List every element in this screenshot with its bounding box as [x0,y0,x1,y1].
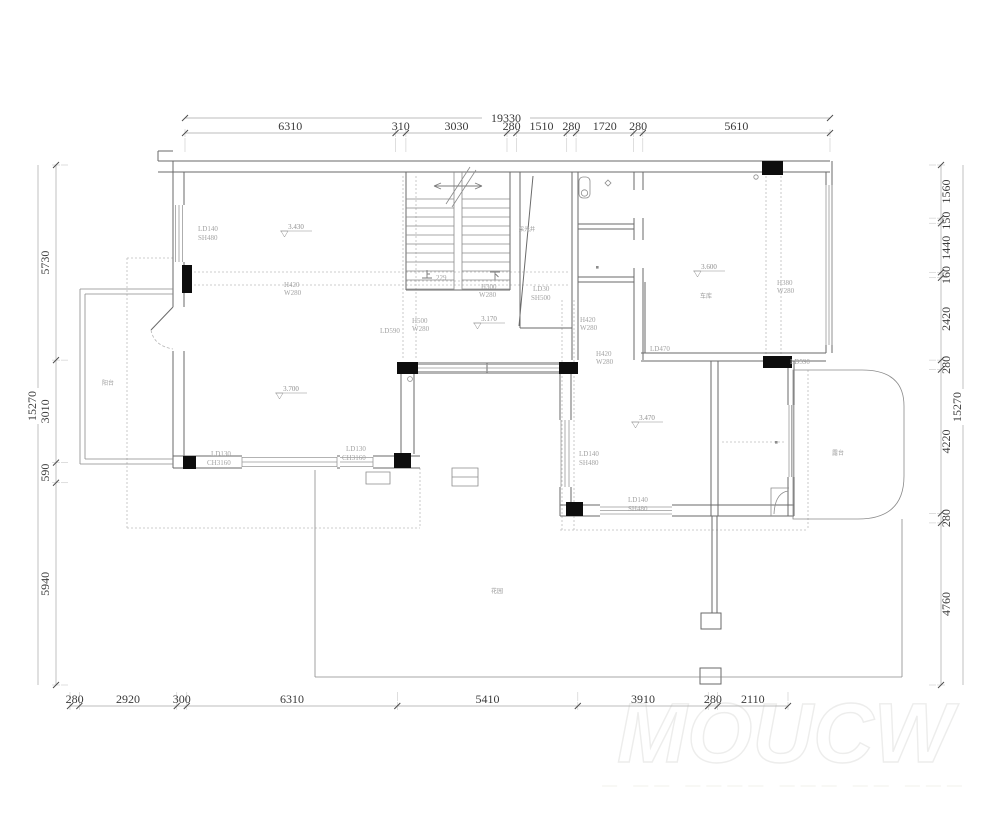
column [397,362,418,374]
dimension-label: 300 [173,692,191,706]
point-marker-3 [775,441,778,444]
annotation-label: W280 [777,287,795,295]
annotation-label: W280 [412,325,430,333]
watermark-subtext: — —— ———— ——— —— ——— [602,777,968,794]
column [763,356,792,368]
dimension-label: 310 [392,119,410,133]
dimension-label: 1720 [593,119,617,133]
dimension-label: 3030 [444,119,468,133]
door-leaf [151,307,173,330]
dimension-label: 280 [562,119,580,133]
annotation-label: LD130 [346,445,366,453]
room-label: 阳台 [102,379,114,387]
column [566,502,583,516]
column [394,453,411,468]
dimension-label: 5730 [38,251,52,275]
dimension-overall-label: 15270 [950,392,964,422]
dimension-label: 2920 [116,692,140,706]
dimension-label: 150 [939,212,953,230]
column [183,456,196,469]
dimension-label: 280 [939,509,953,527]
annotation-label: SH500 [531,294,551,302]
annotation-label: SH480 [628,505,648,513]
annotation-label: H380 [777,279,793,287]
dimension-label: 590 [38,464,52,482]
break-line [446,167,476,207]
annotation-label: W280 [596,358,614,366]
toilet-bowl-icon [581,190,587,196]
column [762,161,783,175]
fence-post [700,668,721,684]
dimension-label: 1440 [939,236,953,260]
dimension-label: 280 [704,692,722,706]
annotation-label: LD590 [380,327,400,335]
floor-drain-icon [605,180,611,186]
floor-plan-sheet: MOUCW — —— ———— ——— —— ——— [0,0,1000,833]
annotation-label: LD140 [628,496,648,504]
elevation-value: 3.600 [701,263,717,271]
annotation-label: CH3160 [207,459,231,467]
structural-columns [182,161,792,516]
annotation-label: LD30 [533,285,550,293]
dimension-label: 4220 [939,430,953,454]
annotation-label: W280 [479,291,497,299]
annotation-label: H500 [412,317,428,325]
dimension-label: 2110 [741,692,765,706]
dimension-label: 5410 [476,692,500,706]
point-marker-2 [754,175,758,179]
dimension-label: 280 [939,356,953,374]
annotation-label: LD590 [790,358,810,366]
elevation-value: 3.700 [283,385,299,393]
annotation-label: H420 [284,281,300,289]
watermark: MOUCW — —— ———— ——— —— ——— [602,686,968,794]
door-swing-arc [151,330,173,349]
dimension-label: 1560 [939,180,953,204]
annotation-label: CH3160 [342,454,366,462]
dimension-label: 3010 [38,399,52,423]
elevation-triangle-icon [276,393,283,399]
elevation-value: 3.170 [481,315,497,323]
annotation-label: LD130 [211,450,231,458]
point-marker [596,266,599,269]
elevation-triangle-icon [281,231,288,237]
pergola-post [701,613,721,629]
annotation-label: LD140 [579,450,599,458]
exterior-steps [366,468,478,486]
dimension-chains: 6310310303028015102801720280561028029203… [25,111,964,710]
stair-count-label: 229 [436,274,447,282]
dimension-label: 1510 [530,119,554,133]
dimension-label: 280 [629,119,647,133]
annotation-label: H420 [580,316,596,324]
room-label: 花园 [491,587,503,595]
floor-plan-canvas: MOUCW — —— ———— ——— —— ——— [0,0,1000,833]
annotation-label: H420 [596,350,612,358]
shower-icon [771,488,789,516]
watermark-text: MOUCW [617,686,960,780]
toilet-icon [579,177,590,198]
windows [176,185,833,514]
dimension-label: 5940 [38,572,52,596]
terrace-right [793,370,904,519]
annotation-label: H300 [481,283,497,291]
dimension-label: 5610 [724,119,748,133]
elevation-value: 3.430 [288,223,304,231]
dimension-label: 3910 [631,692,655,706]
annotation-label: LD140 [198,225,218,233]
elevation-value: 3.470 [639,414,655,422]
garden-fence [315,470,902,677]
dimension-label: 160 [939,266,953,284]
stair-direction-arrows [434,183,482,189]
terrace-left [80,289,173,464]
column [559,362,578,374]
dimension-label: 6310 [280,692,304,706]
annotation-label: LD470 [650,345,670,353]
column [182,265,192,293]
annotation-label: W280 [580,324,598,332]
annotation-label: W280 [284,289,302,297]
room-label: 采光井 [519,225,536,233]
room-label: 露台 [832,449,844,457]
annotation-label: SH480 [579,459,599,467]
elevation-triangle-icon [632,422,639,428]
stair-down-glyph [490,272,500,280]
dimension-label: 6310 [278,119,302,133]
elevation-triangle-icon [694,271,701,277]
dimension-label: 280 [66,692,84,706]
dimension-overall-label: 15270 [25,391,39,421]
dimension-label: 4760 [939,592,953,616]
dimension-overall-label: 19330 [491,111,521,125]
plan-text-labels: 3.4303.7003.1703.6003.470LD140SH480H420W… [102,223,844,595]
downpipe-icon [408,377,413,382]
dimension-label: 2420 [939,307,953,331]
elevation-triangle-icon [474,323,481,329]
annotation-label: SH480 [198,234,218,242]
room-label: 车库 [700,292,712,300]
